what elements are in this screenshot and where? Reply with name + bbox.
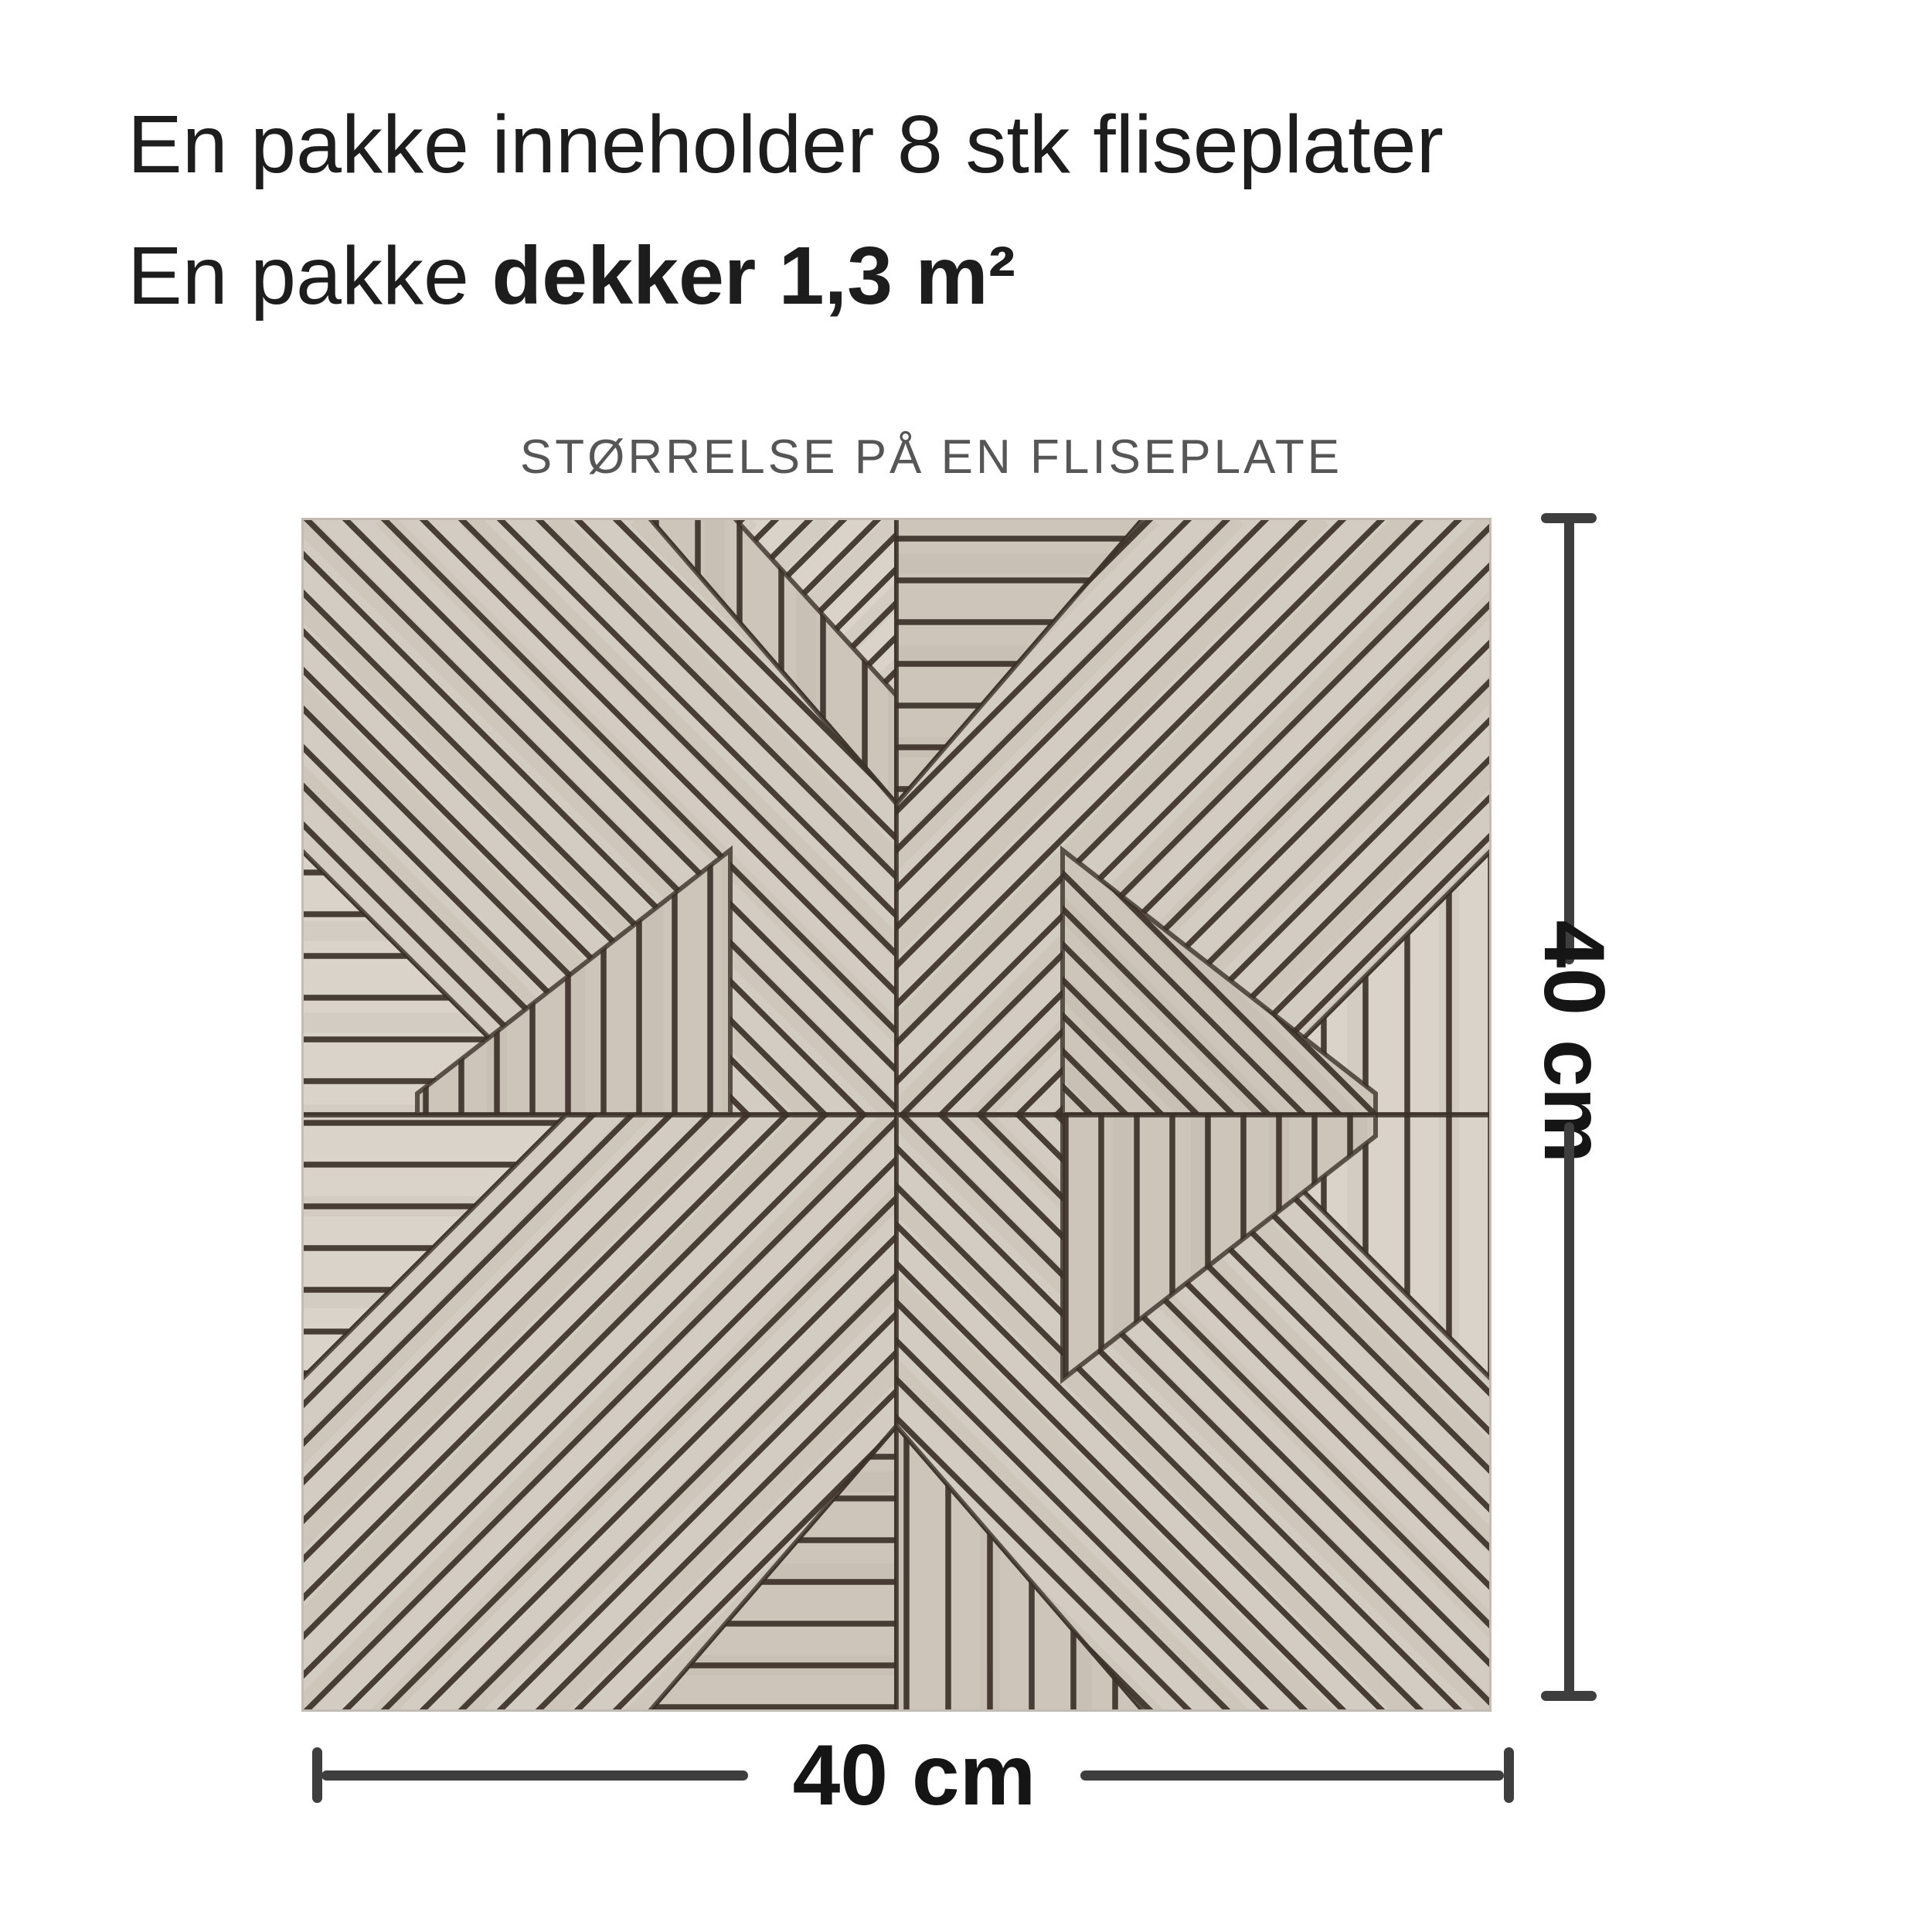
height-dimension-line-lower	[1564, 1122, 1574, 1696]
package-contents-line: En pakke inneholder 8 stk fliseplater	[128, 79, 1444, 210]
width-dimension-label: 40 cm	[793, 1726, 1036, 1825]
height-dimension-line-upper	[1564, 518, 1574, 964]
coverage-prefix: En pakke	[128, 230, 492, 321]
tile-size-caption: STØRRELSE PÅ EN FLISEPLATE	[301, 430, 1561, 485]
infographic-page: En pakke inneholder 8 stk fliseplater En…	[0, 0, 1932, 1932]
coverage-value: dekker 1,3 m²	[492, 230, 1015, 321]
package-coverage-line: En pakke dekker 1,3 m²	[128, 210, 1444, 342]
width-dimension-line-right	[1080, 1770, 1504, 1781]
height-dimension-bottom-cap	[1541, 1691, 1597, 1701]
height-dimension-label: 40 cm	[1525, 920, 1624, 1164]
width-dimension-line-left	[321, 1770, 748, 1781]
width-dimension-right-tick	[1504, 1747, 1514, 1803]
tile-pattern-image	[301, 518, 1492, 1712]
package-info-text: En pakke inneholder 8 stk fliseplater En…	[128, 79, 1444, 342]
